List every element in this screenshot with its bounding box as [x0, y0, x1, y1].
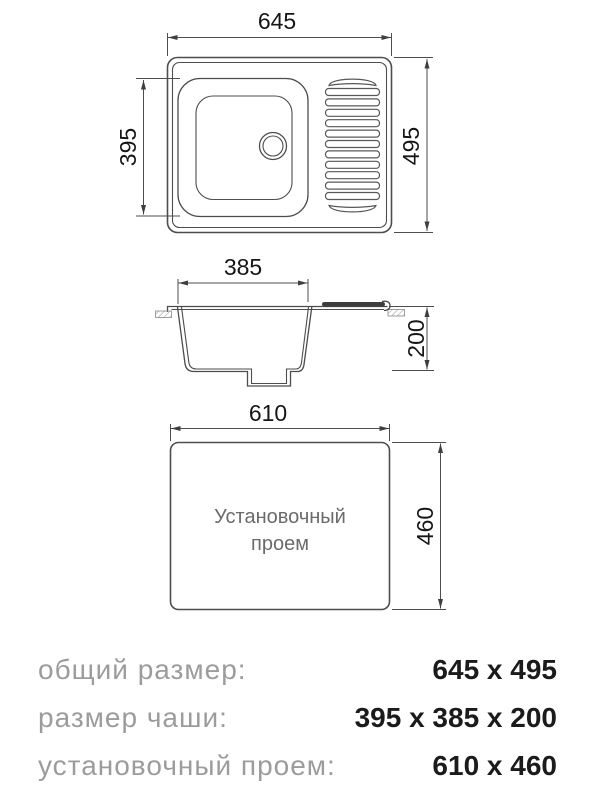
cutout-label-line1: Установочный	[214, 506, 346, 528]
dim-bowl-depth: 200	[403, 319, 429, 357]
spec-value: 645 x 495	[432, 654, 557, 686]
install-view: 610 Установочный проем 460	[171, 400, 447, 610]
dim-bowl-width: 385	[224, 254, 262, 280]
spec-row-overall: общий размер: 645 x 495	[38, 646, 557, 694]
spec-label: установочный проем:	[38, 750, 336, 782]
dim-bowl-length: 395	[115, 128, 141, 166]
bowl-rim	[178, 79, 308, 217]
spec-label: размер чаши:	[38, 702, 228, 734]
dim-overall-width: 645	[258, 8, 296, 34]
dim-cutout-height: 460	[412, 507, 438, 545]
spec-row-bowl: размер чаши: 395 x 385 x 200	[38, 694, 557, 742]
countertop-right	[388, 310, 405, 317]
bowl-bottom	[196, 96, 292, 200]
countertop-left	[156, 311, 172, 318]
drawing-svg: 645 495 395	[0, 0, 600, 645]
top-view: 645 495 395	[115, 8, 433, 233]
drain-hole-inner	[263, 136, 283, 156]
sink-inner-edge	[173, 63, 387, 228]
spec-row-cutout: установочный проем: 610 x 460	[38, 742, 557, 790]
spec-table: общий размер: 645 x 495 размер чаши: 395…	[38, 646, 557, 790]
bowl-profile-outer	[178, 307, 312, 386]
section-view: 385 200	[156, 254, 435, 386]
spec-value: 395 x 385 x 200	[355, 702, 557, 734]
dim-overall-depth: 495	[398, 127, 424, 165]
drainer-profile	[322, 302, 385, 307]
sink-dimension-drawing: 645 495 395	[0, 0, 600, 800]
spec-value: 610 x 460	[432, 750, 557, 782]
drainer-ribs	[326, 79, 380, 212]
spec-label: общий размер:	[38, 654, 247, 686]
dim-cutout-width: 610	[249, 400, 287, 426]
cutout-label-line2: проем	[251, 533, 309, 555]
